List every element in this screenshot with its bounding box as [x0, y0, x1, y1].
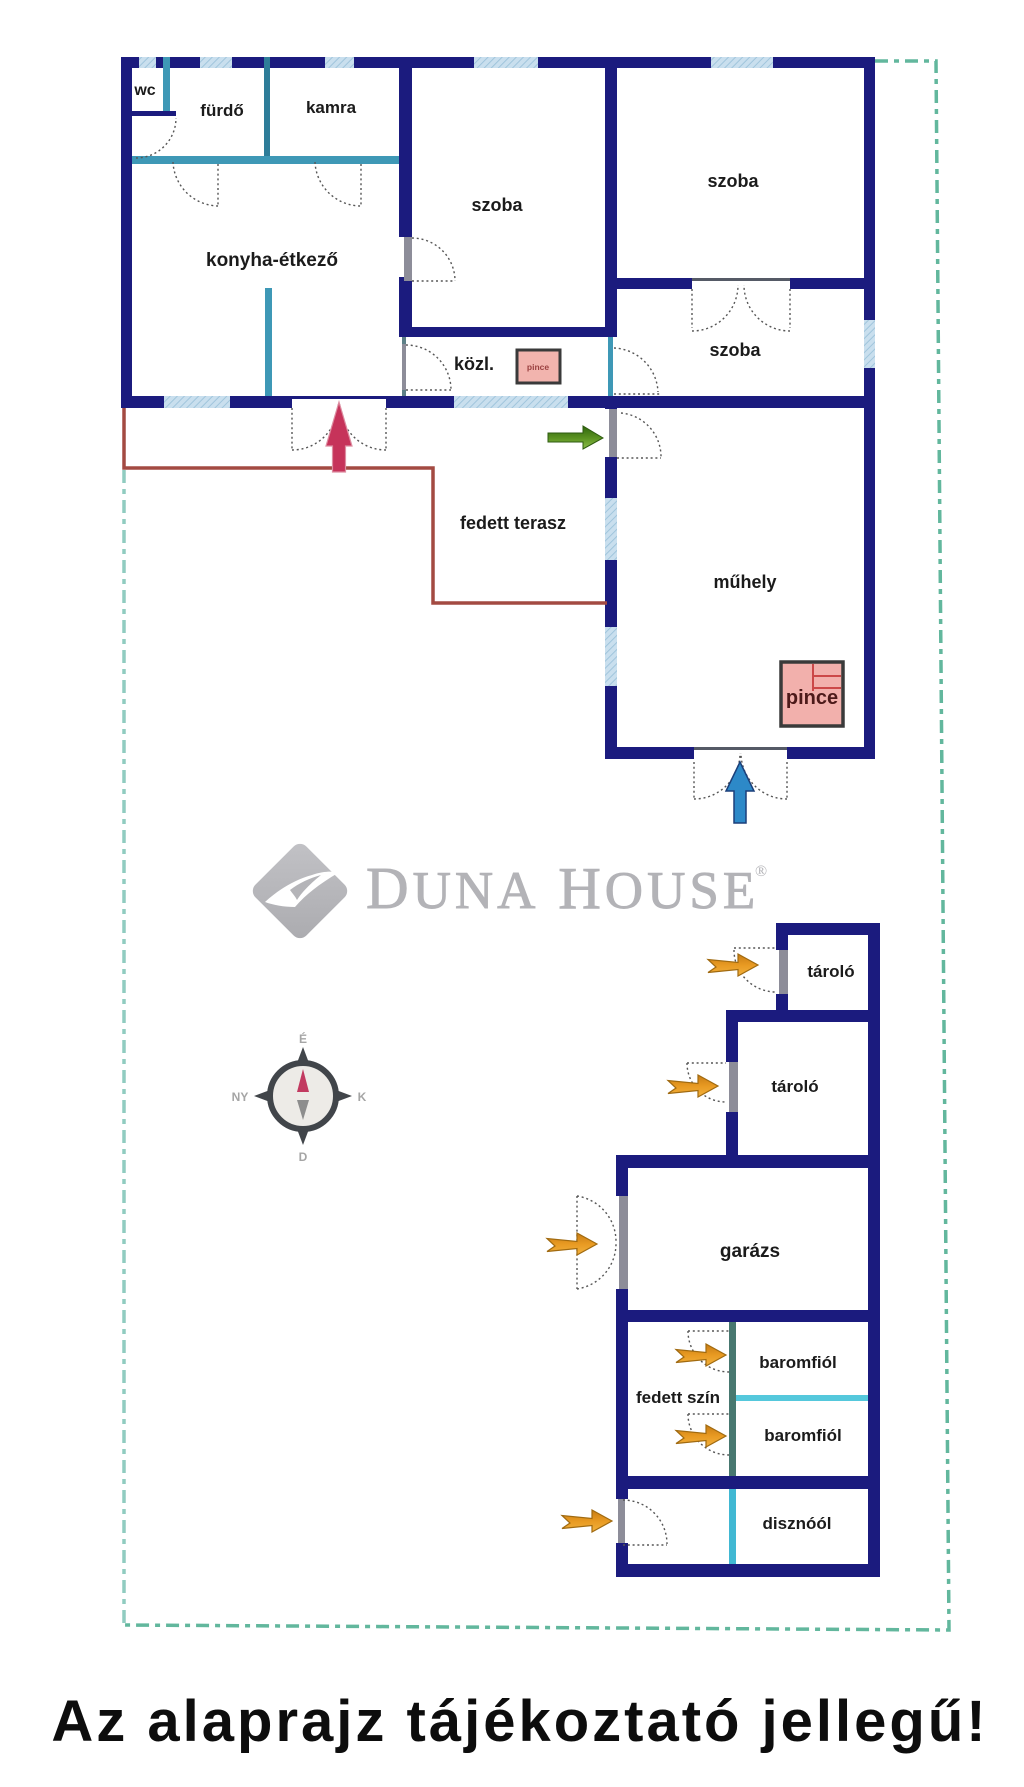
svg-text:garázs: garázs [720, 1241, 780, 1262]
svg-text:Az alaprajz tájékoztató jelleg: Az alaprajz tájékoztató jellegű! [51, 1689, 988, 1754]
svg-text:szoba: szoba [707, 171, 759, 191]
svg-text:disznóól: disznóól [763, 1514, 832, 1533]
svg-text:szoba: szoba [709, 340, 761, 360]
svg-text:fedett terasz: fedett terasz [460, 513, 566, 533]
svg-text:műhely: műhely [713, 572, 776, 592]
svg-text:K: K [358, 1090, 367, 1104]
svg-text:wc: wc [133, 82, 155, 99]
svg-text:NY: NY [232, 1090, 249, 1104]
svg-text:szoba: szoba [471, 195, 523, 215]
svg-text:®: ® [755, 863, 767, 880]
svg-text:kamra: kamra [306, 98, 357, 117]
svg-text:fedett szín: fedett szín [636, 1388, 720, 1407]
svg-text:baromfiól: baromfiól [759, 1353, 836, 1372]
svg-text:fürdő: fürdő [200, 101, 243, 120]
svg-text:közl.: közl. [454, 354, 494, 374]
svg-text:tároló: tároló [807, 962, 854, 981]
svg-text:baromfiól: baromfiól [764, 1426, 841, 1445]
svg-text:tároló: tároló [771, 1077, 818, 1096]
svg-text:D: D [299, 1150, 308, 1164]
svg-text:É: É [299, 1031, 307, 1046]
svg-text:DUNA HOUSE: DUNA HOUSE [366, 855, 759, 921]
svg-text:pince: pince [527, 362, 549, 372]
svg-text:pince: pince [786, 687, 838, 709]
svg-text:konyha-étkező: konyha-étkező [206, 250, 338, 271]
